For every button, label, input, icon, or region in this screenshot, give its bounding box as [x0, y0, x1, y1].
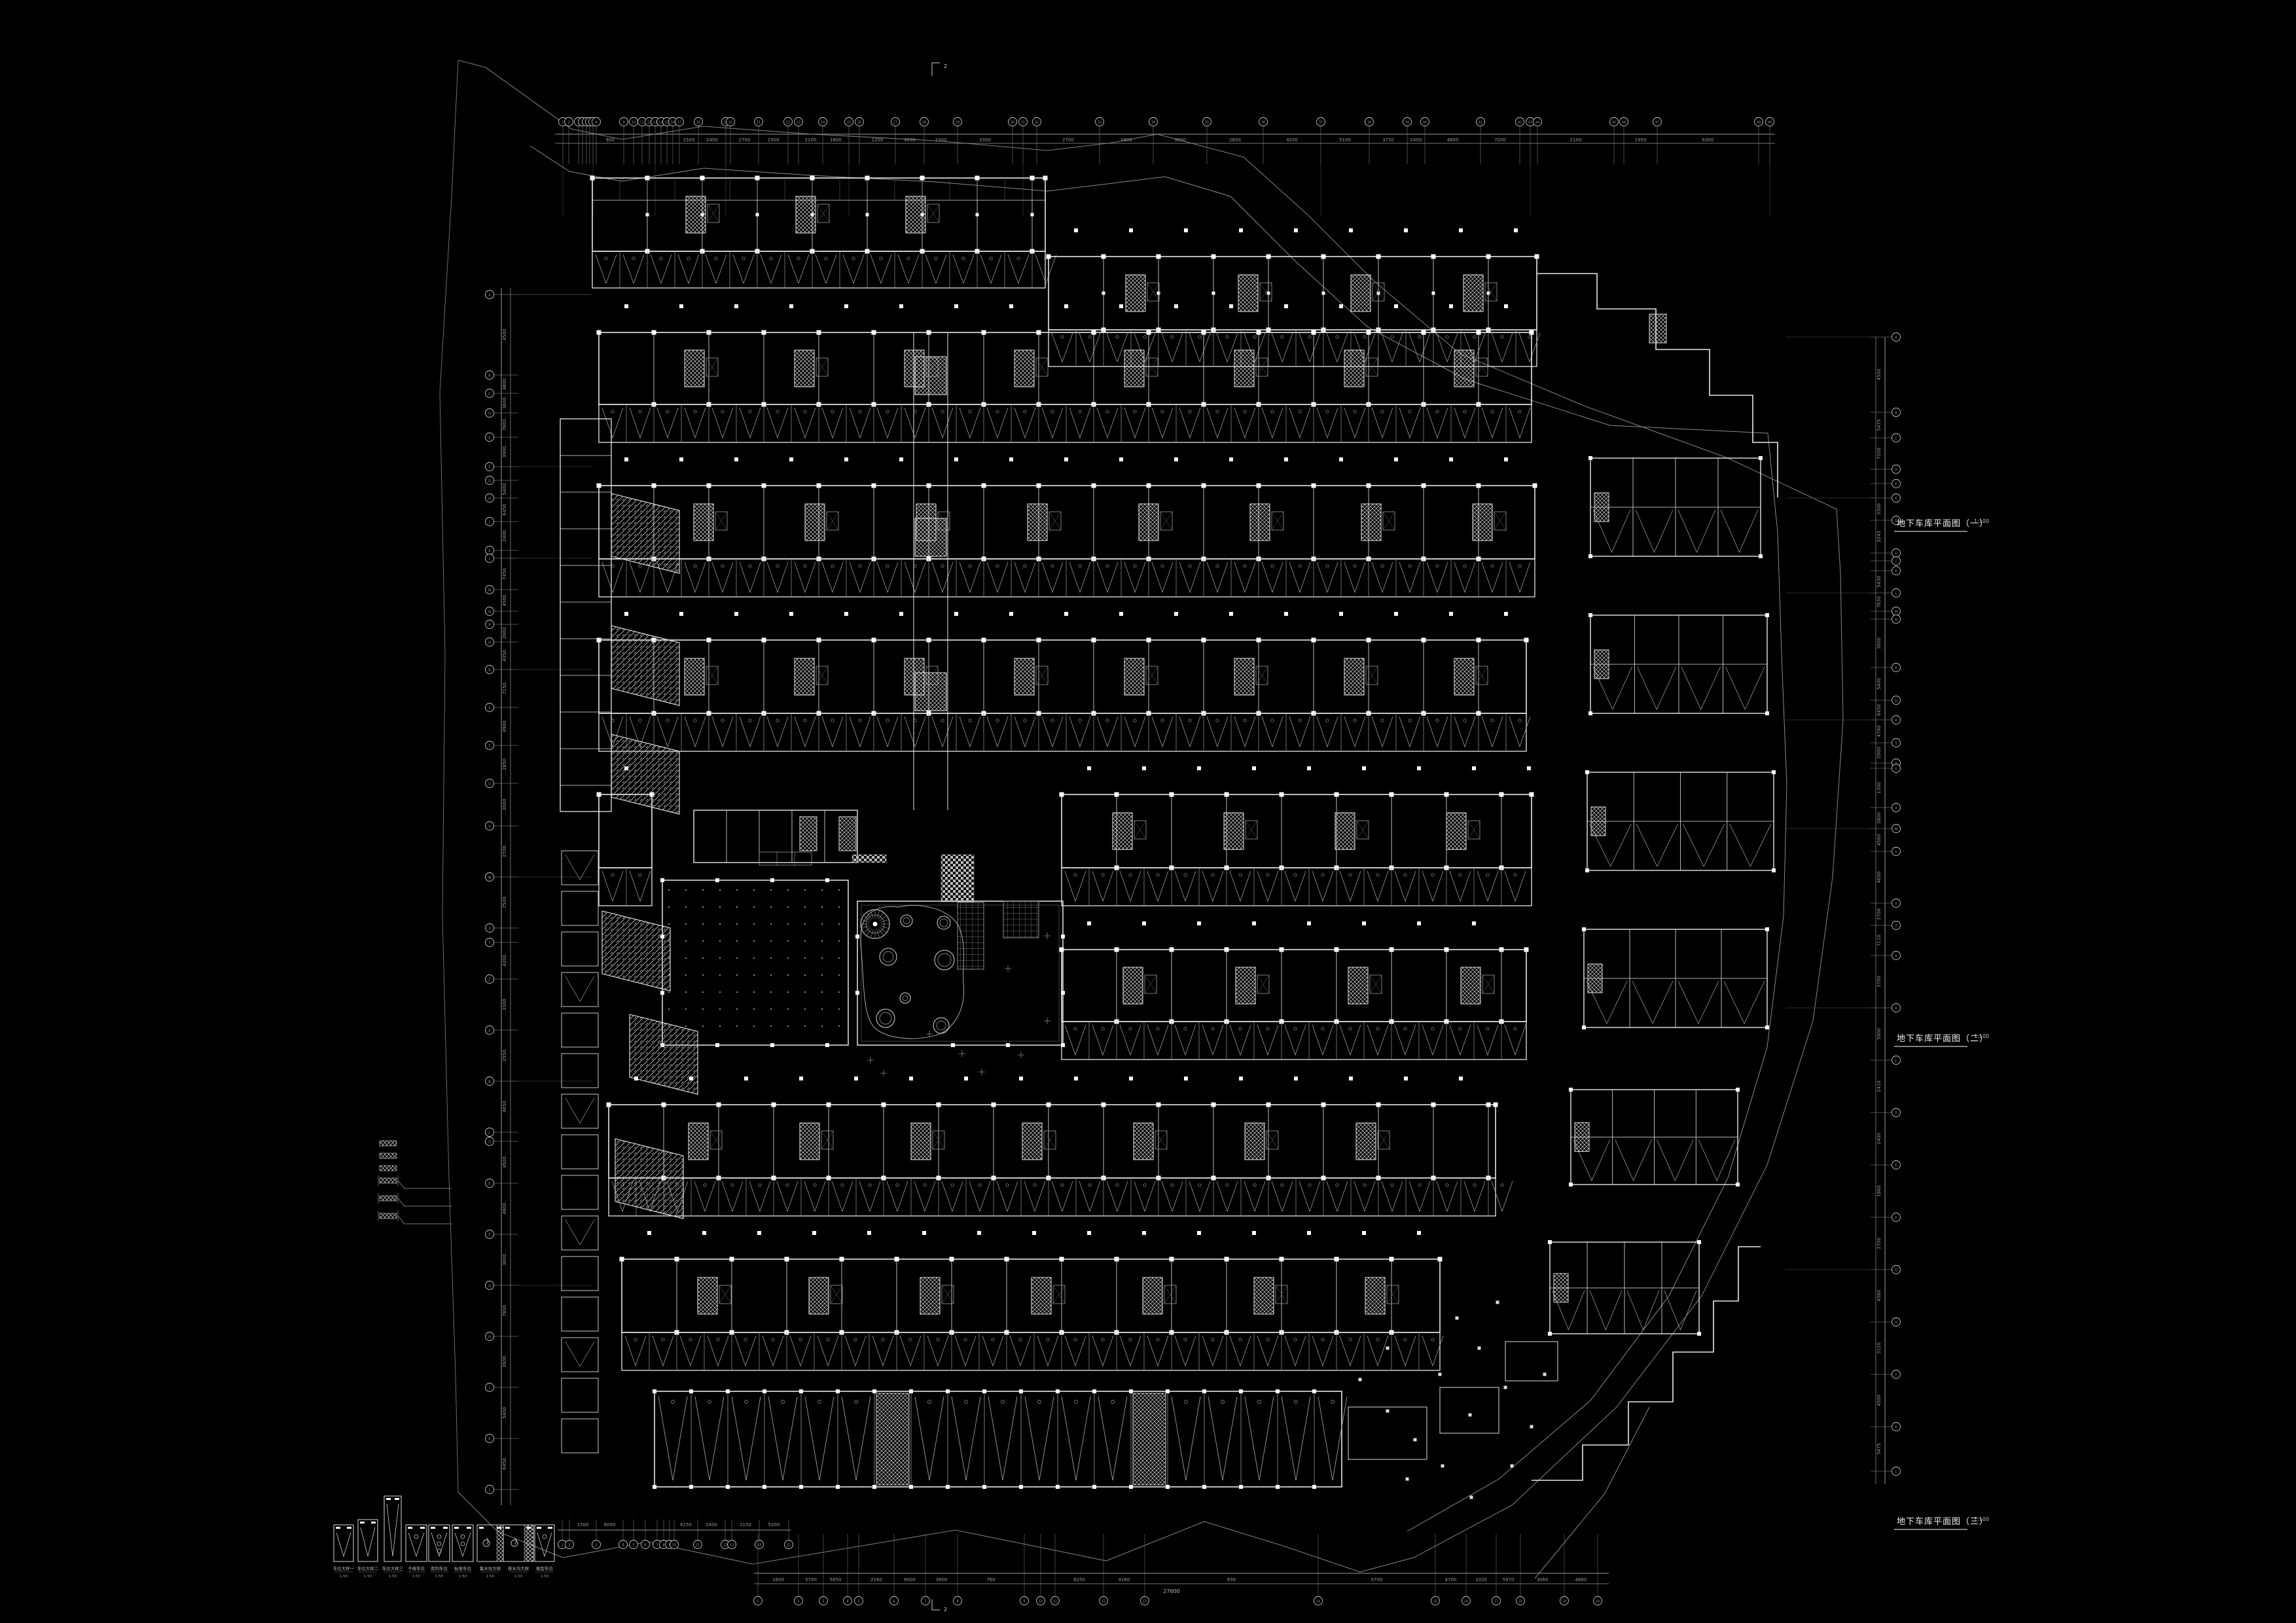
- svg-text:排水沟大样: 排水沟大样: [508, 1565, 529, 1571]
- svg-text:3300: 3300: [979, 137, 991, 143]
- svg-text:1500: 1500: [768, 137, 780, 143]
- svg-text:20: 20: [728, 121, 732, 125]
- building-bands: [590, 176, 1541, 1489]
- central-courtyard: [660, 810, 1065, 1077]
- svg-text:5475: 5475: [1876, 1443, 1882, 1455]
- svg-text:12: 12: [723, 1544, 727, 1548]
- svg-text:45: 45: [1612, 121, 1616, 125]
- svg-text:1:50: 1:50: [389, 1575, 397, 1578]
- svg-text:C: C: [1895, 1060, 1897, 1063]
- svg-text:4800: 4800: [502, 1203, 507, 1215]
- svg-text:7450: 7450: [502, 568, 507, 580]
- svg-text:1300: 1300: [1876, 782, 1882, 794]
- svg-text:1800: 1800: [830, 137, 842, 143]
- svg-text:5900: 5900: [1876, 1028, 1882, 1040]
- svg-text:2700: 2700: [739, 137, 751, 143]
- svg-text:A: A: [1895, 955, 1897, 959]
- legend-hatch-swatches: [378, 1141, 452, 1224]
- svg-text:Z: Z: [1895, 925, 1897, 929]
- svg-text:P: P: [1895, 667, 1897, 671]
- svg-text:32: 32: [1035, 121, 1039, 125]
- svg-text:B: B: [488, 1080, 491, 1084]
- svg-text:4: 4: [846, 1600, 848, 1604]
- svg-text:7: 7: [924, 1600, 926, 1604]
- svg-text:7800: 7800: [502, 1305, 507, 1317]
- svg-text:5400: 5400: [502, 484, 507, 495]
- svg-text:H: H: [488, 497, 491, 501]
- svg-text:15: 15: [1433, 1600, 1437, 1604]
- svg-text:1200: 1200: [872, 137, 884, 143]
- svg-text:4200: 4200: [502, 955, 507, 967]
- svg-text:4500: 4500: [502, 329, 507, 341]
- svg-text:车位大样一: 车位大样一: [333, 1565, 355, 1571]
- svg-text:1950: 1950: [1635, 137, 1647, 143]
- svg-text:B: B: [1895, 412, 1897, 416]
- svg-text:31: 31: [1021, 121, 1025, 125]
- svg-text:Q: Q: [488, 641, 491, 645]
- svg-text:3: 3: [595, 1544, 597, 1548]
- svg-text:3600: 3600: [502, 1254, 507, 1266]
- cad-canvas: 1234567891011121314151617181920212223242…: [0, 0, 2296, 1623]
- svg-text:49: 49: [1768, 121, 1772, 125]
- svg-text:J: J: [488, 521, 490, 525]
- svg-text:3900: 3900: [502, 1356, 507, 1368]
- svg-text:6450: 6450: [1876, 704, 1882, 716]
- svg-text:28: 28: [922, 121, 926, 125]
- svg-text:E: E: [488, 437, 490, 440]
- svg-text:6000: 6000: [904, 1577, 916, 1582]
- svg-text:U: U: [488, 783, 491, 787]
- svg-text:5850: 5850: [830, 1577, 842, 1582]
- svg-text:40: 40: [1423, 121, 1427, 125]
- svg-text:W: W: [488, 876, 492, 880]
- svg-text:5430: 5430: [1876, 576, 1882, 588]
- svg-text:42: 42: [1518, 121, 1522, 125]
- svg-text:L: L: [1895, 1471, 1897, 1474]
- svg-text:S: S: [488, 707, 490, 711]
- svg-text:5475: 5475: [1876, 419, 1882, 431]
- svg-text:5400: 5400: [502, 1407, 507, 1419]
- svg-text:17: 17: [677, 121, 681, 125]
- svg-text:1: 1: [757, 1600, 759, 1604]
- svg-text:20: 20: [1596, 1600, 1600, 1604]
- svg-text:33: 33: [1098, 121, 1102, 125]
- svg-text:U: U: [1895, 768, 1897, 772]
- west-wing: [560, 419, 698, 1453]
- svg-text:14: 14: [1316, 1600, 1320, 1604]
- svg-text:3900: 3900: [502, 628, 507, 639]
- svg-text:17: 17: [1494, 1600, 1498, 1604]
- svg-text:2: 2: [797, 1600, 799, 1604]
- svg-text:1: 1: [562, 121, 564, 125]
- svg-text:P: P: [488, 624, 490, 628]
- plan-scale-3: 1:100: [1974, 1516, 1989, 1522]
- svg-text:4650: 4650: [502, 1101, 507, 1113]
- svg-text:S: S: [1895, 742, 1897, 746]
- svg-text:39: 39: [1405, 121, 1409, 125]
- svg-text:6450: 6450: [502, 1458, 507, 1470]
- svg-text:集水坑大样: 集水坑大样: [480, 1565, 501, 1571]
- svg-text:7630: 7630: [1876, 596, 1882, 608]
- svg-text:16: 16: [671, 121, 675, 125]
- svg-text:3750: 3750: [1382, 137, 1394, 143]
- svg-text:X: X: [488, 927, 491, 931]
- svg-text:4660: 4660: [1575, 1577, 1587, 1582]
- svg-text:8: 8: [595, 121, 597, 125]
- svg-text:10: 10: [672, 1544, 676, 1548]
- svg-text:11: 11: [696, 1544, 700, 1548]
- svg-text:A: A: [488, 294, 491, 298]
- svg-text:37: 37: [1319, 121, 1323, 125]
- svg-text:2850: 2850: [502, 758, 507, 770]
- svg-text:2: 2: [567, 121, 569, 125]
- svg-text:760: 760: [986, 1577, 995, 1582]
- svg-text:1:50: 1:50: [459, 1575, 467, 1578]
- svg-text:46: 46: [1622, 121, 1626, 125]
- svg-text:26: 26: [857, 121, 861, 125]
- svg-text:16: 16: [1464, 1600, 1468, 1604]
- svg-text:标准车位: 标准车位: [454, 1565, 472, 1571]
- svg-text:F: F: [1895, 497, 1897, 501]
- svg-text:1:50: 1:50: [364, 1575, 372, 1578]
- svg-text:3300: 3300: [502, 999, 507, 1010]
- svg-text:H: H: [1895, 1321, 1897, 1325]
- generated-drawing: 1234567891011121314151617181920212223242…: [333, 60, 1901, 1605]
- svg-text:3243: 3243: [1876, 531, 1882, 543]
- svg-text:车位大样二: 车位大样二: [357, 1565, 379, 1571]
- svg-text:2400: 2400: [706, 1522, 717, 1527]
- svg-text:25: 25: [847, 121, 851, 125]
- section-mark-bottom-icon: [932, 1599, 940, 1610]
- svg-text:4500: 4500: [502, 1156, 507, 1168]
- svg-text:43: 43: [1528, 121, 1532, 125]
- grid-chain-right: ABCDEFGHJKLMNPQRSTUVWXYZABCDEFGHJKL45005…: [1785, 333, 1901, 1485]
- svg-text:6150: 6150: [680, 1522, 692, 1527]
- svg-text:7500: 7500: [502, 897, 507, 908]
- svg-text:9: 9: [1023, 1600, 1025, 1604]
- svg-text:1800: 1800: [1121, 137, 1132, 143]
- grid-chain-left: ABCDEFGHJKLMNPQRSTUVWXYZABCDEFGHJKL45004…: [486, 288, 593, 1505]
- svg-text:3600: 3600: [936, 1577, 948, 1582]
- svg-text:5700: 5700: [805, 1577, 817, 1582]
- svg-text:5970: 5970: [1503, 1577, 1515, 1582]
- svg-text:2400: 2400: [706, 137, 718, 143]
- svg-text:18: 18: [1518, 1600, 1522, 1604]
- svg-text:2400: 2400: [502, 530, 507, 542]
- svg-text:D: D: [488, 412, 491, 416]
- plan-scale-2: 1:100: [1974, 1033, 1989, 1039]
- svg-text:34: 34: [1151, 121, 1155, 125]
- svg-text:5200: 5200: [768, 1522, 780, 1527]
- svg-text:900: 900: [605, 137, 614, 143]
- svg-text:4600: 4600: [1876, 872, 1882, 883]
- svg-text:R: R: [1895, 719, 1897, 723]
- svg-text:3: 3: [822, 1600, 824, 1604]
- svg-text:1860: 1860: [1876, 1185, 1882, 1197]
- svg-text:2100: 2100: [805, 137, 817, 143]
- svg-text:5400: 5400: [1876, 678, 1882, 690]
- svg-text:1:50: 1:50: [412, 1575, 421, 1578]
- svg-text:Q: Q: [1895, 700, 1897, 704]
- east-blocks: [1348, 274, 1778, 1499]
- svg-text:双列车位: 双列车位: [431, 1565, 448, 1571]
- svg-text:V: V: [488, 825, 491, 829]
- svg-text:4: 4: [622, 1544, 624, 1548]
- svg-text:1020: 1020: [1475, 1577, 1487, 1582]
- svg-text:8: 8: [662, 1544, 664, 1548]
- svg-text:3300: 3300: [1876, 503, 1882, 515]
- svg-text:41: 41: [1479, 121, 1482, 125]
- svg-text:1:50: 1:50: [486, 1575, 495, 1578]
- svg-text:2: 2: [568, 1544, 570, 1548]
- svg-text:3700: 3700: [1876, 976, 1882, 988]
- svg-text:L: L: [489, 558, 491, 562]
- svg-text:4800: 4800: [502, 378, 507, 390]
- svg-text:H: H: [488, 1336, 491, 1340]
- svg-text:B: B: [1895, 1007, 1897, 1011]
- svg-text:3000: 3000: [502, 799, 507, 811]
- svg-text:4500: 4500: [502, 595, 507, 607]
- svg-text:4700: 4700: [1445, 1577, 1457, 1582]
- svg-text:24: 24: [821, 121, 825, 125]
- svg-text:2700: 2700: [502, 846, 507, 857]
- svg-text:F: F: [489, 466, 491, 470]
- svg-text:47: 47: [1655, 121, 1659, 125]
- svg-text:C: C: [488, 393, 491, 397]
- svg-text:E: E: [488, 1183, 490, 1186]
- svg-text:C: C: [488, 1132, 491, 1135]
- svg-text:4560: 4560: [1876, 834, 1882, 846]
- svg-text:10: 10: [632, 121, 636, 125]
- svg-text:8: 8: [956, 1600, 958, 1604]
- svg-text:3000: 3000: [1876, 637, 1882, 649]
- svg-text:2700: 2700: [1876, 908, 1882, 920]
- svg-text:4800: 4800: [1447, 137, 1459, 143]
- svg-text:11: 11: [1053, 1600, 1057, 1604]
- svg-text:48: 48: [1757, 121, 1761, 125]
- svg-text:L: L: [1895, 592, 1897, 596]
- legend-parking-details: 车位大样一1:50车位大样二1:50车位大样三1:50子母车位1:50双列车位1…: [333, 1496, 554, 1578]
- svg-text:D: D: [1895, 469, 1897, 473]
- svg-text:15: 15: [787, 1544, 791, 1548]
- svg-text:19: 19: [1562, 1600, 1566, 1604]
- plan-scale-1: 1:100: [1974, 518, 1989, 524]
- overall-dimension: 27600: [1163, 1588, 1179, 1594]
- svg-text:2850: 2850: [1229, 137, 1241, 143]
- svg-text:29: 29: [956, 121, 960, 125]
- svg-text:G: G: [488, 480, 491, 484]
- svg-text:A: A: [1895, 336, 1897, 340]
- svg-text:3120: 3120: [1876, 1342, 1882, 1354]
- svg-text:J: J: [1895, 560, 1896, 564]
- svg-text:M: M: [488, 589, 491, 593]
- svg-text:23: 23: [797, 121, 800, 125]
- svg-text:X: X: [1895, 851, 1897, 855]
- svg-text:G: G: [1895, 1269, 1897, 1273]
- svg-text:6450: 6450: [502, 504, 507, 516]
- svg-text:H: H: [1895, 552, 1897, 556]
- svg-text:6: 6: [644, 1544, 646, 1548]
- svg-text:38: 38: [1367, 121, 1371, 125]
- svg-text:1:50: 1:50: [340, 1575, 348, 1578]
- svg-text:13: 13: [730, 1544, 734, 1548]
- svg-text:子母车位: 子母车位: [408, 1565, 425, 1571]
- section-mark-top-icon: [932, 63, 940, 76]
- svg-text:7200: 7200: [1876, 448, 1882, 459]
- svg-text:4500: 4500: [1876, 1395, 1882, 1406]
- svg-text:4200: 4200: [1286, 137, 1298, 143]
- svg-text:J: J: [1895, 1374, 1896, 1378]
- svg-text:1:50: 1:50: [541, 1575, 549, 1578]
- svg-text:9: 9: [622, 121, 624, 125]
- svg-text:3600: 3600: [502, 397, 507, 409]
- svg-text:车位大样三: 车位大样三: [382, 1565, 404, 1571]
- svg-text:7150: 7150: [502, 683, 507, 694]
- svg-text:6300: 6300: [1702, 137, 1714, 143]
- svg-text:1: 1: [561, 1544, 563, 1548]
- svg-text:1:50: 1:50: [514, 1575, 523, 1578]
- svg-text:7800: 7800: [502, 419, 507, 431]
- svg-text:B: B: [488, 374, 491, 378]
- svg-text:1500: 1500: [935, 137, 947, 143]
- svg-text:30: 30: [1011, 121, 1014, 125]
- svg-text:2400: 2400: [1410, 137, 1422, 143]
- svg-text:C: C: [1895, 437, 1897, 441]
- svg-text:11: 11: [640, 121, 644, 125]
- svg-text:N: N: [1895, 618, 1897, 622]
- svg-text:1:50: 1:50: [435, 1575, 444, 1578]
- svg-text:2700: 2700: [1062, 137, 1074, 143]
- svg-text:2100: 2100: [1570, 137, 1582, 143]
- svg-text:E: E: [1895, 1164, 1897, 1168]
- svg-text:2800: 2800: [1876, 812, 1882, 824]
- svg-text:W: W: [1895, 828, 1898, 832]
- svg-text:2150: 2150: [740, 1522, 751, 1527]
- svg-text:36: 36: [1261, 121, 1265, 125]
- svg-text:M: M: [1895, 611, 1897, 615]
- svg-text:4900: 4900: [502, 721, 507, 732]
- svg-text:5700: 5700: [1371, 1577, 1383, 1582]
- svg-text:27: 27: [893, 121, 897, 125]
- svg-text:Z: Z: [488, 978, 491, 982]
- svg-text:4200: 4200: [904, 137, 916, 143]
- svg-text:4380: 4380: [1876, 1290, 1882, 1302]
- svg-text:4350: 4350: [502, 650, 507, 662]
- svg-text:5: 5: [632, 1544, 634, 1548]
- plan-titles: 地下车库平面图（一） 1:100 地下车库平面图（二） 1:100 地下车库平面…: [1894, 518, 1989, 1529]
- svg-text:G: G: [488, 1285, 491, 1289]
- svg-text:E: E: [1895, 483, 1897, 487]
- svg-text:7200: 7200: [1494, 137, 1506, 143]
- svg-text:3060: 3060: [1537, 1577, 1549, 1582]
- svg-text:6000: 6000: [604, 1522, 616, 1527]
- svg-text:A: A: [488, 1029, 491, 1033]
- section-mark-bottom-label: 2: [944, 1607, 947, 1613]
- grid-chain-top: 1234567891011121314151617181920212223242…: [555, 118, 1775, 217]
- svg-text:1500: 1500: [683, 137, 695, 143]
- svg-text:F: F: [489, 1234, 491, 1238]
- svg-text:N: N: [488, 611, 491, 615]
- svg-text:10: 10: [1039, 1600, 1043, 1604]
- svg-text:7110: 7110: [1876, 935, 1882, 946]
- svg-text:22: 22: [786, 121, 790, 125]
- svg-text:4700: 4700: [1876, 726, 1882, 738]
- svg-text:2700: 2700: [1876, 1238, 1882, 1249]
- svg-text:18: 18: [696, 121, 700, 125]
- grid-chain-bottom: 1234567891011121314151500600061502400215…: [558, 1520, 1609, 1605]
- svg-text:6: 6: [893, 1600, 895, 1604]
- svg-text:21: 21: [757, 121, 761, 125]
- svg-text:7: 7: [656, 1544, 658, 1548]
- svg-text:J: J: [488, 1387, 490, 1391]
- svg-text:44: 44: [1535, 121, 1539, 125]
- svg-text:2410: 2410: [1876, 1080, 1882, 1092]
- svg-text:830: 830: [1227, 1577, 1236, 1582]
- svg-text:1500: 1500: [577, 1522, 589, 1527]
- svg-text:5100: 5100: [1339, 137, 1351, 143]
- svg-text:3900: 3900: [1174, 137, 1186, 143]
- svg-text:D: D: [488, 1141, 491, 1145]
- svg-text:6250: 6250: [1073, 1577, 1085, 1582]
- svg-text:2160: 2160: [870, 1577, 882, 1582]
- svg-text:2400: 2400: [1876, 1133, 1882, 1145]
- svg-text:5: 5: [857, 1600, 859, 1604]
- svg-text:2550: 2550: [502, 1050, 507, 1061]
- svg-text:1600: 1600: [772, 1577, 784, 1582]
- cad-sheet: 1234567891011121314151617181920212223242…: [0, 0, 2296, 1623]
- section-mark-top-label: 2: [944, 63, 947, 69]
- svg-text:3900: 3900: [502, 446, 507, 458]
- svg-text:4160: 4160: [1119, 1577, 1130, 1582]
- svg-text:D: D: [1895, 1112, 1897, 1116]
- svg-text:13: 13: [1143, 1600, 1147, 1604]
- svg-text:L: L: [489, 1489, 491, 1493]
- svg-text:2900: 2900: [1876, 747, 1882, 759]
- svg-text:R: R: [488, 669, 491, 673]
- svg-text:微型车位: 微型车位: [536, 1565, 554, 1571]
- section-marks: 2 2: [932, 63, 947, 1613]
- svg-text:4500: 4500: [1876, 369, 1882, 381]
- svg-text:35: 35: [1205, 121, 1209, 125]
- svg-text:F: F: [1895, 1217, 1897, 1221]
- svg-text:12: 12: [1102, 1600, 1105, 1604]
- svg-text:V: V: [1895, 807, 1897, 811]
